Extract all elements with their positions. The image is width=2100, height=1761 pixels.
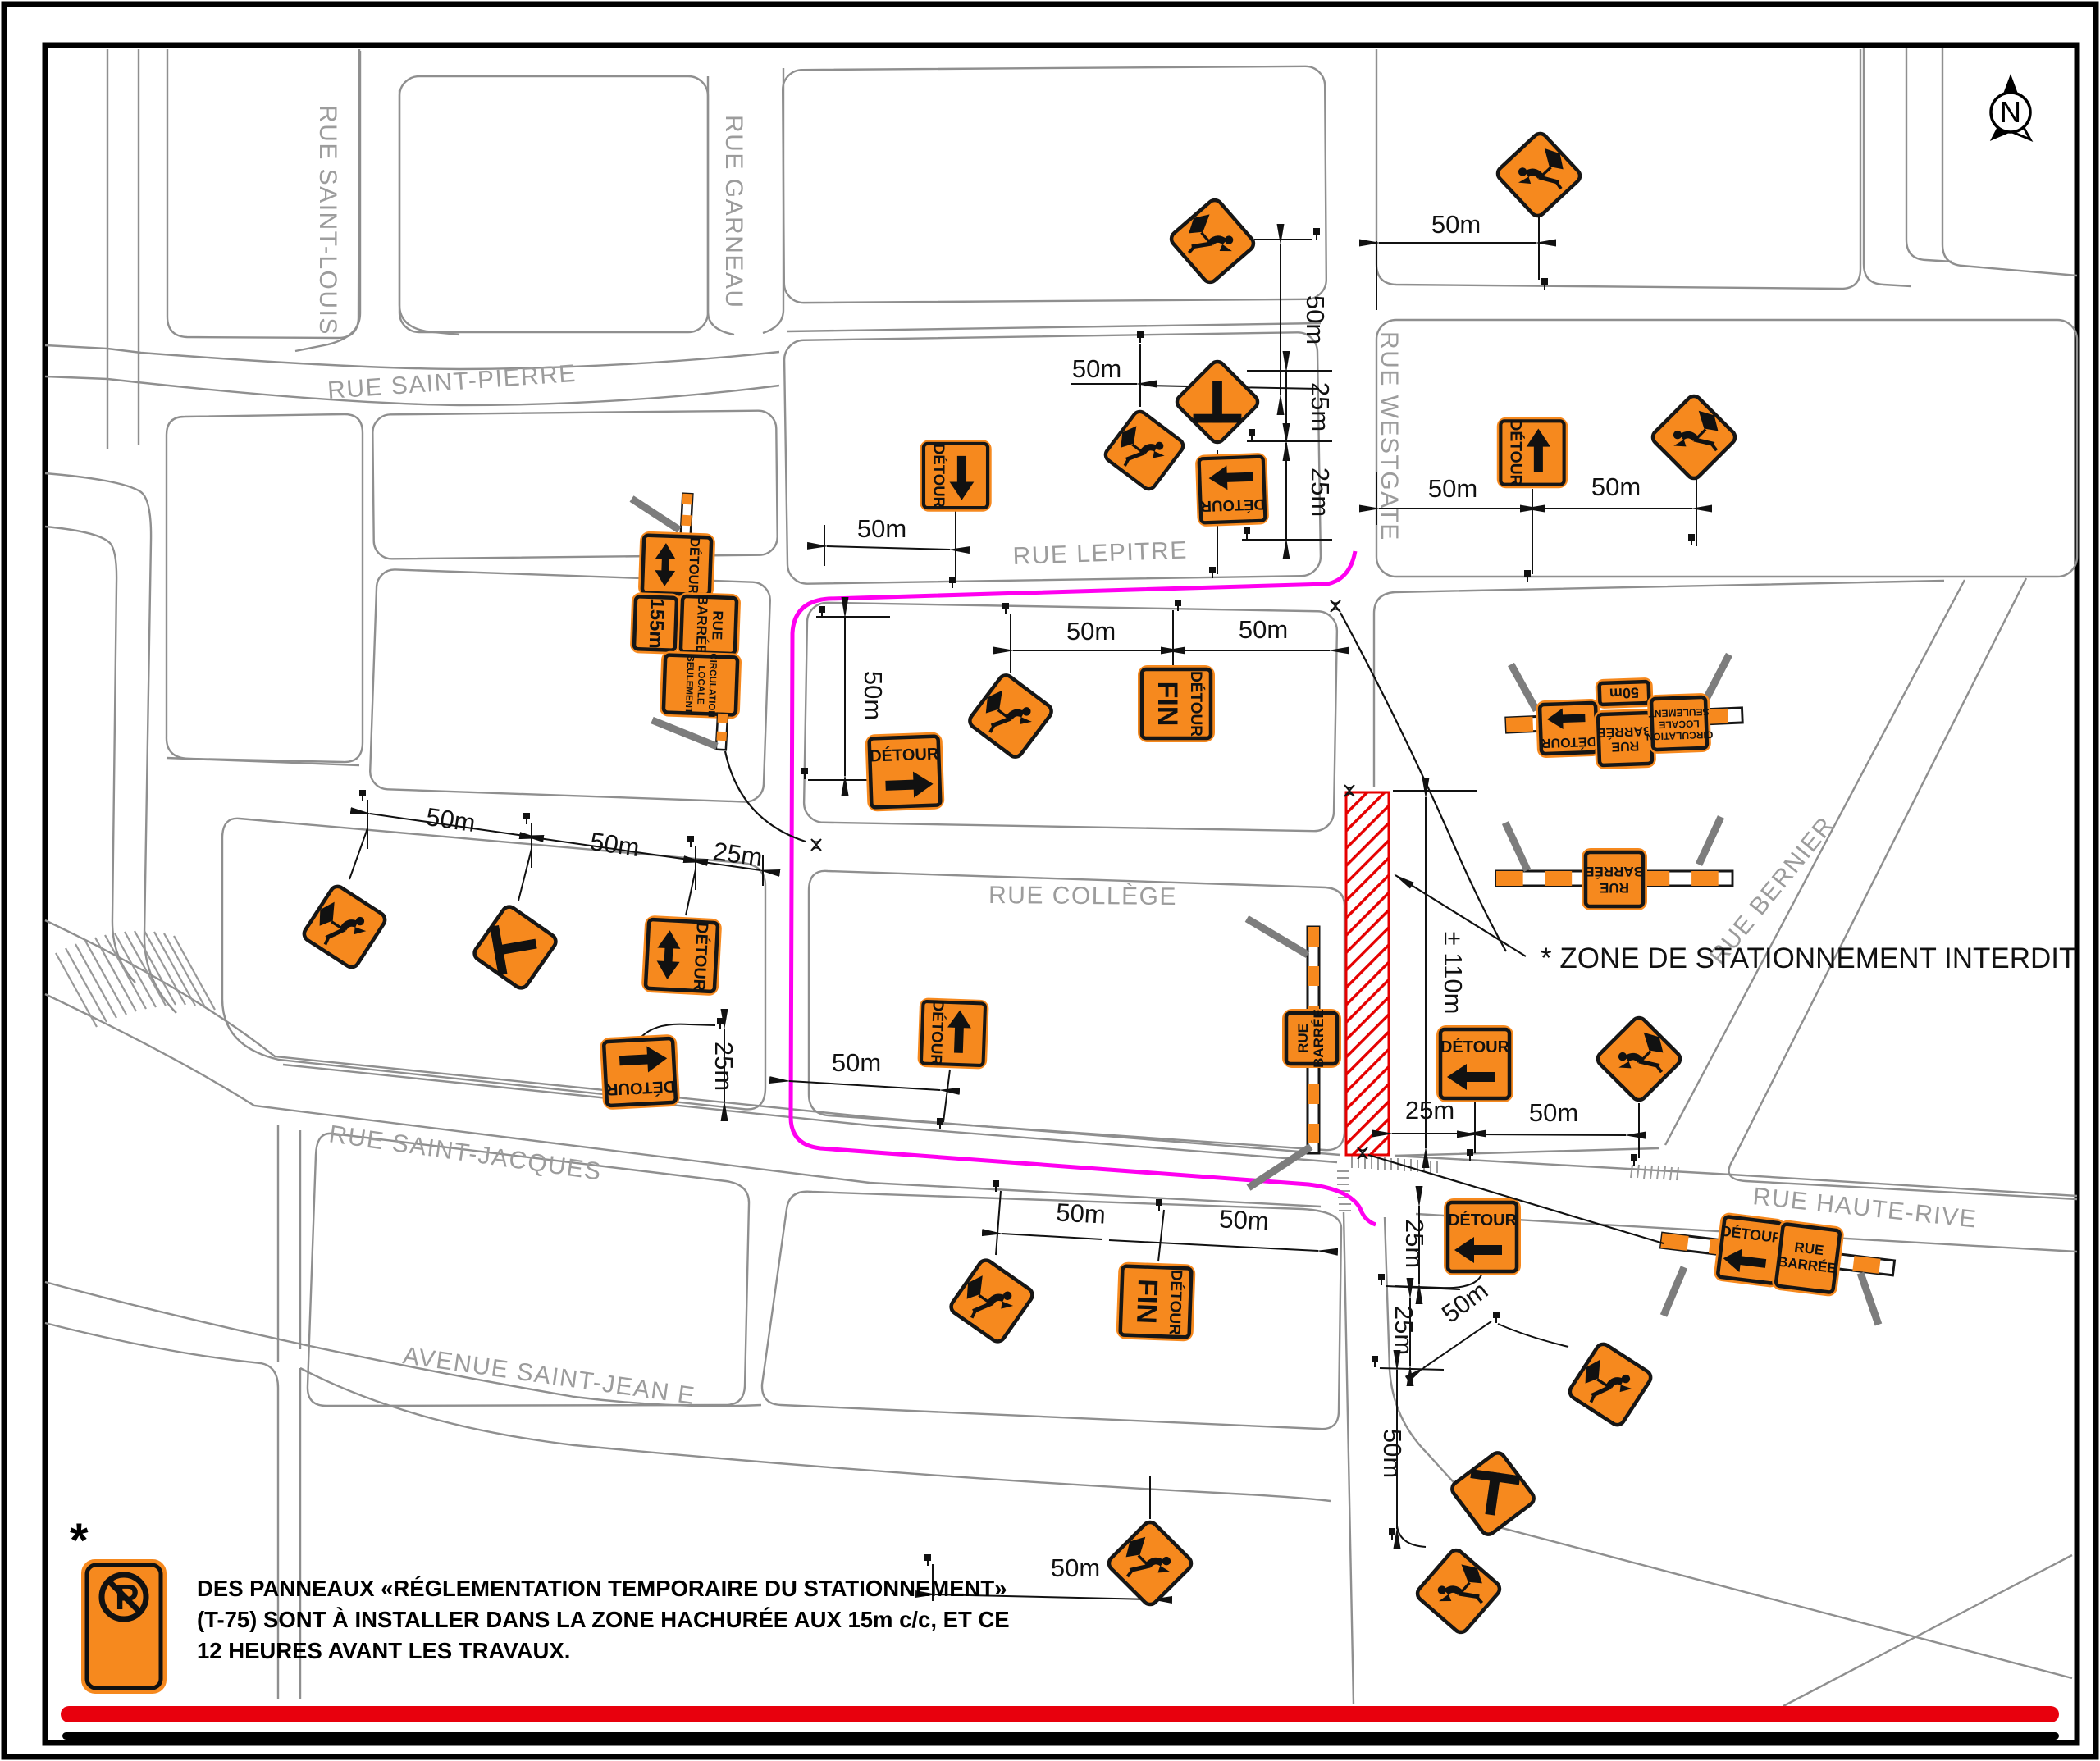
- svg-text:DÉTOUR: DÉTOUR: [1507, 419, 1526, 486]
- svg-text:50m: 50m: [1591, 472, 1641, 501]
- svg-text:RUE GARNEAU: RUE GARNEAU: [720, 115, 747, 309]
- svg-text:25m: 25m: [1405, 1096, 1454, 1125]
- svg-text:DES PANNEAUX «RÉGLEMENTATION T: DES PANNEAUX «RÉGLEMENTATION TEMPORAIRE …: [197, 1576, 1007, 1601]
- svg-text:DÉTOUR: DÉTOUR: [689, 922, 711, 992]
- svg-text:DÉTOUR: DÉTOUR: [927, 1000, 947, 1065]
- svg-text:(T-75) SONT À INSTALLER DANS L: (T-75) SONT À INSTALLER DANS LA ZONE HAC…: [197, 1607, 1010, 1632]
- svg-text:DÉTOUR: DÉTOUR: [1187, 671, 1205, 737]
- svg-text:50m: 50m: [1219, 1204, 1270, 1235]
- svg-text:50m: 50m: [1428, 474, 1477, 503]
- svg-text:25m: 25m: [1400, 1219, 1429, 1268]
- svg-text:BARRÉE: BARRÉE: [1585, 864, 1644, 879]
- svg-text:DÉTOUR: DÉTOUR: [870, 745, 939, 766]
- svg-text:LOCALE: LOCALE: [695, 665, 706, 705]
- svg-text:155m: 155m: [645, 598, 669, 649]
- svg-text:± 110m: ± 110m: [1439, 932, 1468, 1015]
- svg-text:N: N: [2000, 95, 2021, 129]
- svg-text:FIN: FIN: [1152, 682, 1183, 727]
- svg-text:25m: 25m: [1306, 382, 1335, 431]
- svg-text:RUE: RUE: [709, 610, 725, 641]
- svg-text:BARRÉE: BARRÉE: [1596, 723, 1653, 741]
- svg-text:50m: 50m: [1239, 615, 1288, 644]
- svg-text:FIN: FIN: [1130, 1279, 1163, 1325]
- svg-text:DÉTOUR: DÉTOUR: [1440, 1038, 1510, 1056]
- svg-text:DÉTOUR: DÉTOUR: [1541, 734, 1596, 751]
- svg-text:RUE SAINT-LOUIS: RUE SAINT-LOUIS: [314, 105, 341, 335]
- svg-text:SEULEMENT: SEULEMENT: [683, 655, 695, 714]
- svg-text:* ZONE DE STATIONNEMENT INTERD: * ZONE DE STATIONNEMENT INTERDIT: [1541, 942, 2076, 974]
- svg-text:50m: 50m: [1301, 295, 1330, 344]
- svg-text:50m: 50m: [857, 514, 906, 543]
- svg-text:DÉTOUR: DÉTOUR: [1166, 1270, 1186, 1336]
- svg-text:DÉTOUR: DÉTOUR: [931, 444, 948, 509]
- svg-text:DÉTOUR: DÉTOUR: [605, 1077, 676, 1099]
- svg-text:50m: 50m: [1051, 1553, 1100, 1582]
- svg-text:50m: 50m: [1056, 1198, 1107, 1229]
- svg-text:50m: 50m: [1066, 617, 1116, 646]
- svg-text:RUE: RUE: [1295, 1024, 1311, 1053]
- svg-text:50m: 50m: [1609, 684, 1640, 701]
- svg-text:BARRÉE: BARRÉE: [693, 595, 710, 654]
- svg-text:*: *: [70, 1514, 89, 1567]
- svg-text:DÉTOUR: DÉTOUR: [1448, 1211, 1518, 1230]
- svg-text:50m: 50m: [832, 1048, 881, 1077]
- svg-text:50m: 50m: [1529, 1098, 1578, 1127]
- svg-text:RUE COLLÈGE: RUE COLLÈGE: [988, 882, 1177, 910]
- svg-text:25m: 25m: [1306, 468, 1335, 517]
- svg-text:SEULEMENT: SEULEMENT: [1648, 706, 1710, 720]
- svg-text:25m: 25m: [1390, 1306, 1418, 1355]
- svg-text:DÉTOUR: DÉTOUR: [685, 537, 702, 595]
- svg-text:DÉTOUR: DÉTOUR: [1200, 496, 1265, 516]
- svg-text:BARRÉE: BARRÉE: [1311, 1009, 1326, 1068]
- svg-text:RUE: RUE: [1600, 880, 1629, 896]
- svg-text:50m: 50m: [1378, 1429, 1407, 1478]
- svg-text:50m: 50m: [859, 671, 888, 720]
- svg-text:RUE: RUE: [1611, 738, 1640, 753]
- svg-text:50m: 50m: [1431, 210, 1481, 239]
- svg-text:50m: 50m: [1072, 354, 1121, 383]
- svg-text:12 HEURES AVANT LES TRAVAUX.: 12 HEURES AVANT LES TRAVAUX.: [197, 1638, 570, 1663]
- svg-text:CIRCULATION: CIRCULATION: [1646, 729, 1713, 743]
- svg-text:RUE WESTGATE: RUE WESTGATE: [1376, 331, 1403, 541]
- svg-text:25m: 25m: [710, 1042, 738, 1091]
